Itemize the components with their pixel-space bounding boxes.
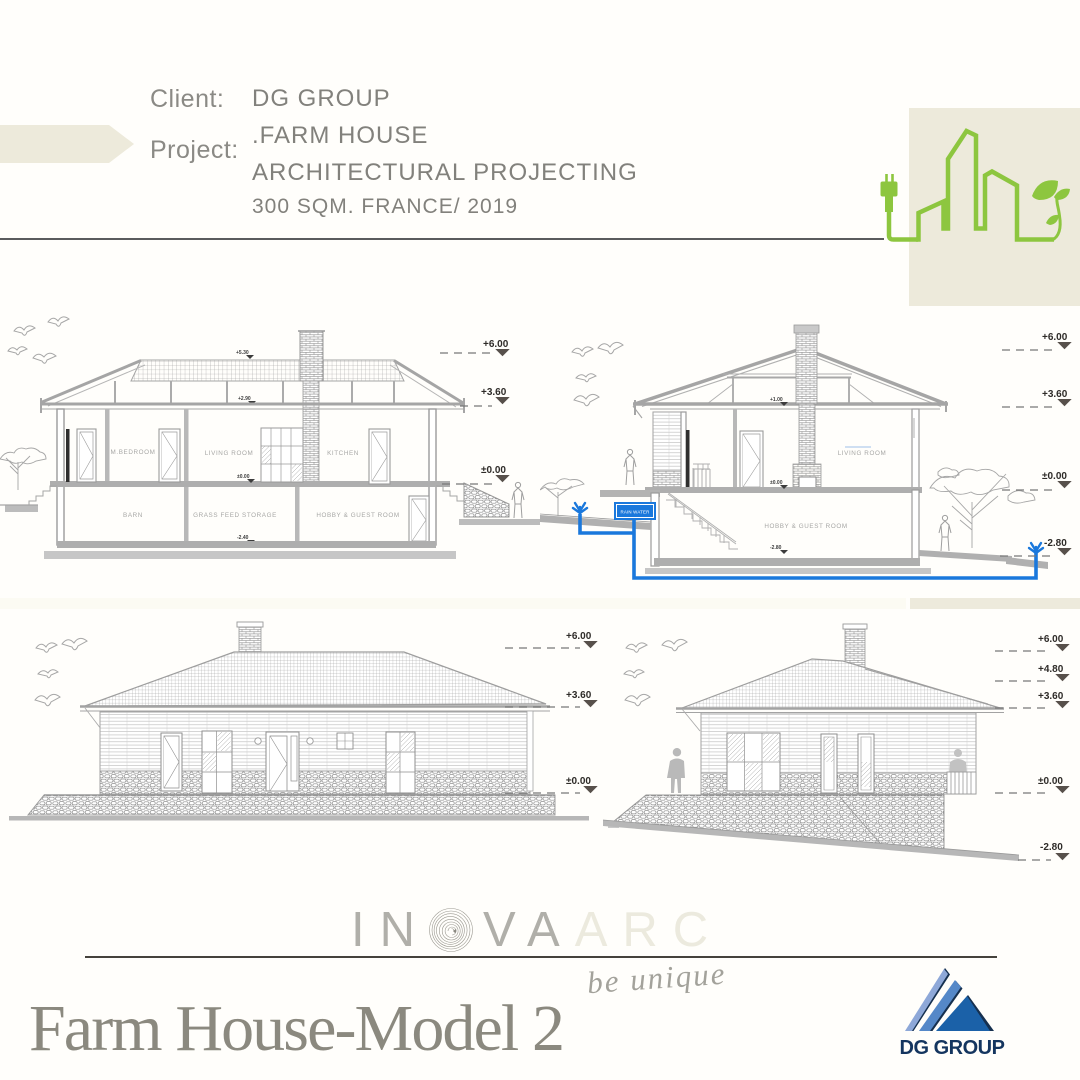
- svg-text:-2.80: -2.80: [1040, 842, 1063, 853]
- svg-text:DG GROUP: DG GROUP: [900, 1037, 1005, 1059]
- svg-text:-2.40: -2.40: [237, 535, 249, 541]
- svg-text:±0.00: ±0.00: [1038, 776, 1063, 787]
- svg-text:+4.80: +4.80: [1038, 664, 1064, 675]
- svg-text:+3.60: +3.60: [1042, 389, 1068, 400]
- svg-text:-2.80: -2.80: [770, 545, 782, 551]
- svg-text:HOBBY & GUEST ROOM: HOBBY & GUEST ROOM: [764, 523, 847, 530]
- svg-text:+6.00: +6.00: [483, 339, 509, 350]
- svg-text:LIVING ROOM: LIVING ROOM: [205, 450, 254, 457]
- svg-text:RAIN WATER: RAIN WATER: [620, 510, 649, 515]
- svg-text:±0.00: ±0.00: [1042, 471, 1067, 482]
- svg-text:+6.00: +6.00: [566, 631, 592, 642]
- svg-text:+3.60: +3.60: [1038, 691, 1064, 702]
- svg-text:+3.60: +3.60: [566, 690, 592, 701]
- svg-text:LIVING ROOM: LIVING ROOM: [838, 450, 887, 457]
- svg-text:BARN: BARN: [123, 512, 143, 519]
- svg-text:HOBBY & GUEST ROOM: HOBBY & GUEST ROOM: [316, 512, 399, 519]
- svg-text:±0.00: ±0.00: [566, 776, 591, 787]
- svg-text:+6.00: +6.00: [1038, 634, 1064, 645]
- svg-text:M.BEDROOM: M.BEDROOM: [111, 449, 156, 456]
- svg-text:KITCHEN: KITCHEN: [327, 450, 359, 457]
- svg-text:+6.00: +6.00: [1042, 332, 1068, 343]
- svg-text:-2.80: -2.80: [1044, 538, 1067, 549]
- svg-text:GRASS FEED STORAGE: GRASS FEED STORAGE: [193, 512, 277, 519]
- svg-text:+3.60: +3.60: [481, 387, 507, 398]
- svg-text:±0.00: ±0.00: [481, 465, 506, 476]
